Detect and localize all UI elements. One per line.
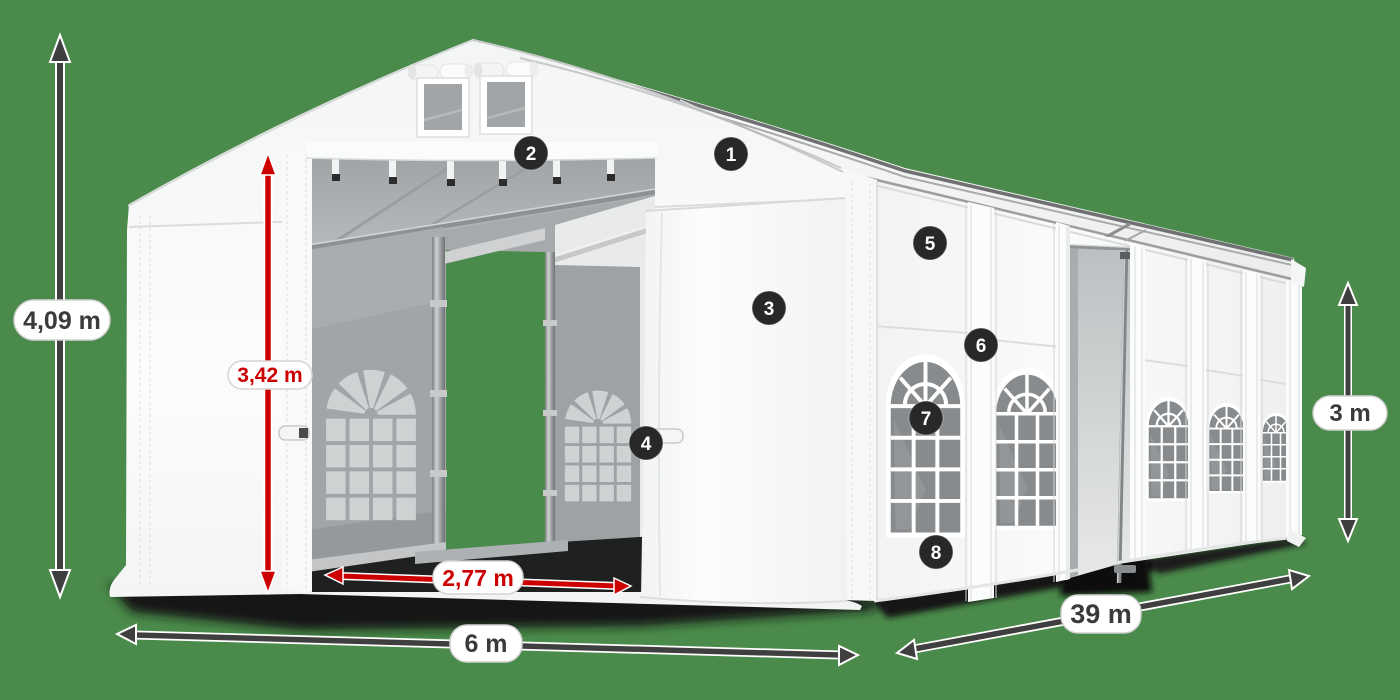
svg-text:4,09 m: 4,09 m bbox=[23, 307, 101, 335]
svg-text:6 m: 6 m bbox=[464, 630, 507, 658]
svg-text:3 m: 3 m bbox=[1329, 400, 1370, 427]
svg-text:2: 2 bbox=[526, 144, 537, 165]
svg-text:3,42 m: 3,42 m bbox=[237, 364, 302, 387]
svg-text:4: 4 bbox=[641, 434, 652, 455]
svg-text:1: 1 bbox=[726, 145, 737, 166]
svg-text:2,77 m: 2,77 m bbox=[442, 565, 514, 591]
svg-text:3: 3 bbox=[764, 299, 775, 320]
svg-text:5: 5 bbox=[925, 234, 936, 255]
svg-text:6: 6 bbox=[976, 336, 987, 357]
svg-text:39 m: 39 m bbox=[1070, 599, 1132, 629]
svg-text:8: 8 bbox=[931, 543, 942, 564]
svg-text:7: 7 bbox=[921, 409, 932, 430]
